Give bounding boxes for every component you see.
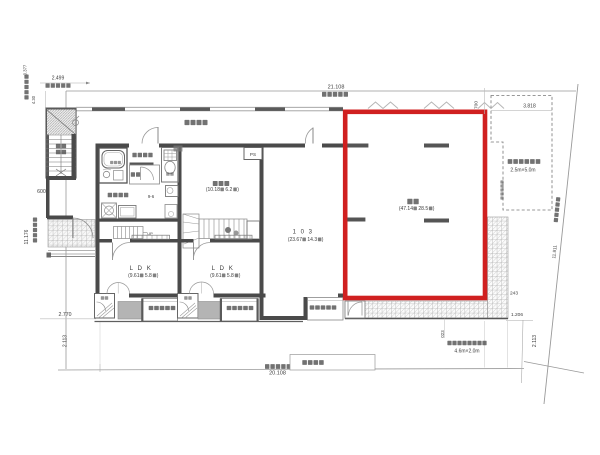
svg-text:600: 600	[37, 189, 46, 195]
svg-text:243: 243	[510, 291, 518, 297]
svg-text:(10.18: (10.18	[206, 187, 220, 193]
svg-text:2.499: 2.499	[52, 76, 65, 82]
svg-text:L D K: L D K	[212, 265, 235, 272]
svg-text:1 0 3: 1 0 3	[293, 230, 314, 236]
svg-text:5.8: 5.8	[227, 273, 234, 279]
svg-text:2.113: 2.113	[532, 335, 538, 347]
svg-text:3.818: 3.818	[523, 104, 536, 110]
svg-text:(23.67: (23.67	[288, 237, 302, 243]
svg-text:4.30: 4.30	[31, 95, 36, 104]
svg-text:5.8: 5.8	[145, 273, 152, 279]
svg-text:14.3: 14.3	[307, 237, 317, 243]
svg-text:(9.61: (9.61	[210, 273, 222, 279]
svg-text:20.108: 20.108	[269, 371, 286, 377]
svg-text:21.108: 21.108	[328, 85, 345, 91]
svg-text:28.5: 28.5	[418, 206, 428, 212]
svg-text:4.6m×2.0m: 4.6m×2.0m	[454, 349, 479, 355]
svg-text:(47.14: (47.14	[399, 206, 413, 212]
svg-text:6.2: 6.2	[225, 187, 232, 193]
svg-text:11.176: 11.176	[24, 229, 30, 244]
svg-text:2.5m×5.0m: 2.5m×5.0m	[510, 168, 535, 174]
svg-text:9-6: 9-6	[148, 194, 155, 199]
svg-text:(9.61: (9.61	[128, 273, 140, 279]
svg-text:PS: PS	[250, 152, 256, 157]
svg-text:0.377: 0.377	[23, 64, 28, 75]
svg-text:L D K: L D K	[130, 265, 153, 272]
svg-text:2.770: 2.770	[59, 312, 72, 318]
svg-text:1.206: 1.206	[511, 312, 523, 318]
svg-text:2.113: 2.113	[63, 335, 69, 347]
